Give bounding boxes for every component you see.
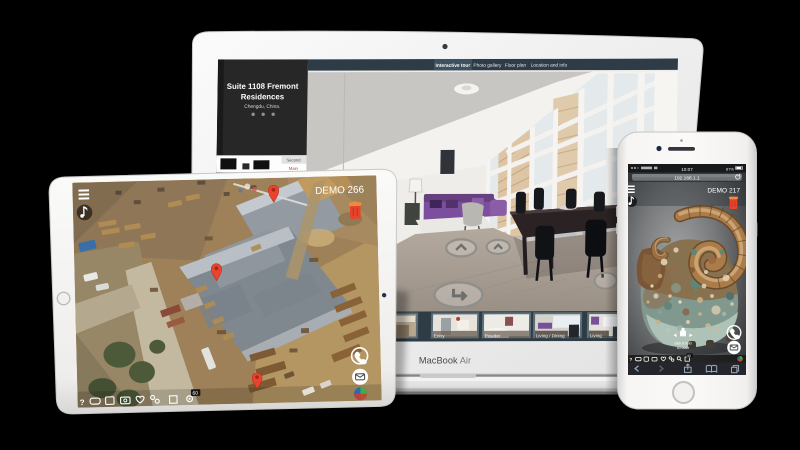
svg-text:Living / Dining: Living / Dining [536,333,565,338]
svg-text:60: 60 [687,354,691,358]
svg-text:10:07: 10:07 [681,167,693,172]
svg-text:MacBook Air: MacBook Air [419,356,471,366]
svg-text:Entry: Entry [434,333,445,338]
svg-text:Interactive tour: Interactive tour [436,63,471,69]
svg-text:DEMO 266: DEMO 266 [315,185,365,197]
svg-text:?: ? [80,398,85,407]
svg-text:click & hold: click & hold [674,342,691,346]
svg-text:87%: 87% [726,167,734,172]
svg-text:Location and info: Location and info [531,63,568,69]
svg-text:Floor plan: Floor plan [505,63,527,69]
svg-text:Photo gallery: Photo gallery [473,63,502,69]
svg-text:Powder: Powder [485,333,501,338]
svg-text:Residences: Residences [241,92,285,101]
svg-text:Chengdu, China.: Chengdu, China. [244,104,280,110]
svg-text:60: 60 [192,391,198,397]
svg-text:to rotate: to rotate [677,346,690,350]
svg-text:Main: Main [289,166,299,171]
svg-text:DEMO 217: DEMO 217 [707,188,740,195]
svg-text:Living: Living [590,333,603,338]
svg-text:?: ? [630,357,633,362]
svg-text:Second: Second [286,158,301,163]
svg-text:Suite 1108 Fremont: Suite 1108 Fremont [227,82,299,91]
svg-text:192.168.1.1: 192.168.1.1 [674,175,700,181]
